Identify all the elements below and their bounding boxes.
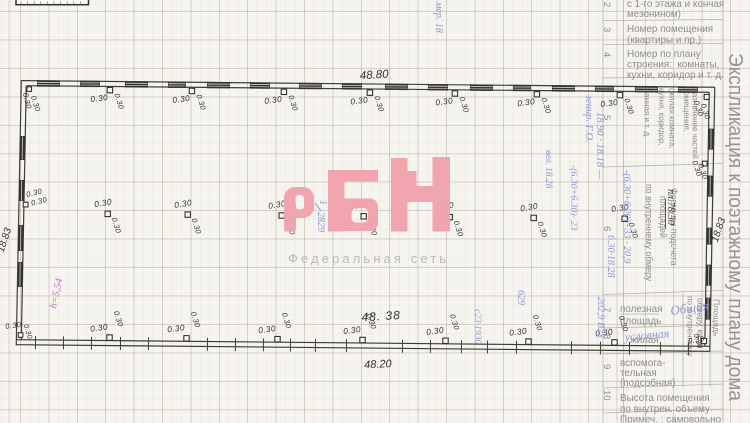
svg-text:0.30: 0.30 <box>509 325 528 337</box>
svg-text:0.30: 0.30 <box>110 216 124 235</box>
svg-text:строения: комнаты,: строения: комнаты, <box>627 60 719 71</box>
svg-text:-(6.30+6.30)· 23: -(6.30+6.30)· 23 <box>568 165 579 230</box>
svg-text:0.30: 0.30 <box>452 220 466 239</box>
svg-text:(жилая комната,: (жилая комната, <box>668 88 677 149</box>
svg-text:0.30: 0.30 <box>190 217 204 236</box>
svg-text:-(6.30+6.20)+33 · 20,9: -(6.30+6.20)+33 · 20,9 <box>621 170 632 264</box>
svg-text:48.80: 48.80 <box>359 69 389 83</box>
svg-text:h=5,54: h=5,54 <box>48 277 65 310</box>
svg-text:0.30: 0.30 <box>167 322 186 334</box>
svg-text:ванная и т. д.: ванная и т. д. <box>643 89 652 138</box>
svg-text:мер. 18: мер. 18 <box>433 1 444 33</box>
svg-text:0.30: 0.30 <box>112 92 126 111</box>
svg-text:0.30: 0.30 <box>448 313 462 332</box>
svg-text:0.30: 0.30 <box>457 96 471 115</box>
svg-text:полезная: полезная <box>620 304 662 315</box>
svg-text:0.30: 0.30 <box>435 95 454 107</box>
svg-text:кухня, коридор,: кухня, коридор, <box>657 88 666 146</box>
svg-text:кухни, коридор и т. д.: кухни, коридор и т. д. <box>627 70 724 81</box>
svg-text:2: 2 <box>601 2 612 7</box>
svg-text:Номер помещения: Номер помещения <box>627 24 713 35</box>
svg-text:0.30: 0.30 <box>536 220 550 239</box>
svg-text:0.30: 0.30 <box>172 93 191 105</box>
svg-text:629: 629 <box>515 290 526 305</box>
svg-text:с23·1930: с23·1930 <box>472 309 482 344</box>
svg-text:48.20: 48.20 <box>364 358 393 371</box>
svg-text:Высота помещения: Высота помещения <box>620 393 710 404</box>
svg-text:48. 38: 48. 38 <box>361 308 401 324</box>
svg-text:0.30: 0.30 <box>90 321 109 333</box>
svg-text:0.30: 0.30 <box>22 324 33 341</box>
svg-text:0.30: 0.30 <box>343 324 362 336</box>
svg-text:0.30: 0.30 <box>286 94 300 113</box>
svg-text:пл.78.30: пл.78.30 <box>665 189 676 226</box>
svg-text:Примеч. : самовольно: Примеч. : самовольно <box>620 415 722 423</box>
svg-text:0.30: 0.30 <box>90 92 109 104</box>
svg-text:0.30: 0.30 <box>600 97 619 109</box>
svg-text:0.30: 0.30 <box>539 96 553 115</box>
svg-text:зенир. Г.О.: зенир. Г.О. <box>583 94 594 143</box>
svg-text:помещения,: помещения, <box>682 87 691 132</box>
svg-text:0.30: 0.30 <box>264 94 283 106</box>
svg-text:Федеральная сеть: Федеральная сеть <box>288 251 449 266</box>
svg-text:0.30: 0.30 <box>5 320 23 331</box>
svg-text:10: 10 <box>601 390 612 401</box>
svg-text:(квартиры и пр.): (квартиры и пр.) <box>627 35 701 46</box>
svg-text:4: 4 <box>601 52 612 57</box>
svg-text:0.30: 0.30 <box>189 311 203 330</box>
svg-text:1: 1 <box>317 200 328 205</box>
svg-text:2829: 2829 <box>315 212 326 232</box>
svg-text:0.30: 0.30 <box>194 93 208 112</box>
svg-text:0.30: 0.30 <box>517 96 536 108</box>
svg-text:0.30: 0.30 <box>622 97 636 116</box>
svg-text:Площадь: Площадь <box>712 299 722 337</box>
svg-text:Номер по плану: Номер по плану <box>627 49 701 60</box>
svg-text:(подсобная): (подсобная) <box>620 378 675 389</box>
svg-text:Экспликация к поэтажному плану: Экспликация к поэтажному плану дома <box>724 53 746 402</box>
svg-text:0.30: 0.30 <box>519 201 538 214</box>
svg-text:9: 9 <box>601 364 612 369</box>
svg-text:мезонином): мезонином) <box>627 9 681 20</box>
svg-text:202,9 В23: 202,9 В23 <box>595 297 606 338</box>
svg-text:18.83: 18.83 <box>0 226 14 254</box>
svg-text:по внутрен. объему: по внутрен. объему <box>620 404 710 415</box>
svg-text:по внутреннему обмеру: по внутреннему обмеру <box>644 184 654 282</box>
svg-text:0.30: 0.30 <box>258 323 277 335</box>
svg-text:0.30: 0.30 <box>267 198 286 211</box>
svg-text:0.30: 0.30 <box>531 314 545 333</box>
svg-text:0.30: 0.30 <box>280 311 294 330</box>
svg-text:0.30: 0.30 <box>350 94 369 106</box>
svg-text:3: 3 <box>601 27 612 32</box>
svg-text:0.30: 0.30 <box>173 197 192 210</box>
svg-text:0.30: 0.30 <box>112 310 126 329</box>
svg-text:6: 6 <box>601 226 612 231</box>
svg-text:вел. 18.28: вел. 18.28 <box>543 150 553 189</box>
svg-text:18.90 · 18.18 —: 18.90 · 18.18 — <box>594 112 605 180</box>
svg-text:0.30: 0.30 <box>426 325 445 337</box>
svg-text:0.30: 0.30 <box>93 196 112 209</box>
svg-text:6.30·18.28: 6.30·18.28 <box>605 235 616 278</box>
svg-text:условная: условная <box>623 326 670 344</box>
svg-text:0.30: 0.30 <box>372 95 386 114</box>
